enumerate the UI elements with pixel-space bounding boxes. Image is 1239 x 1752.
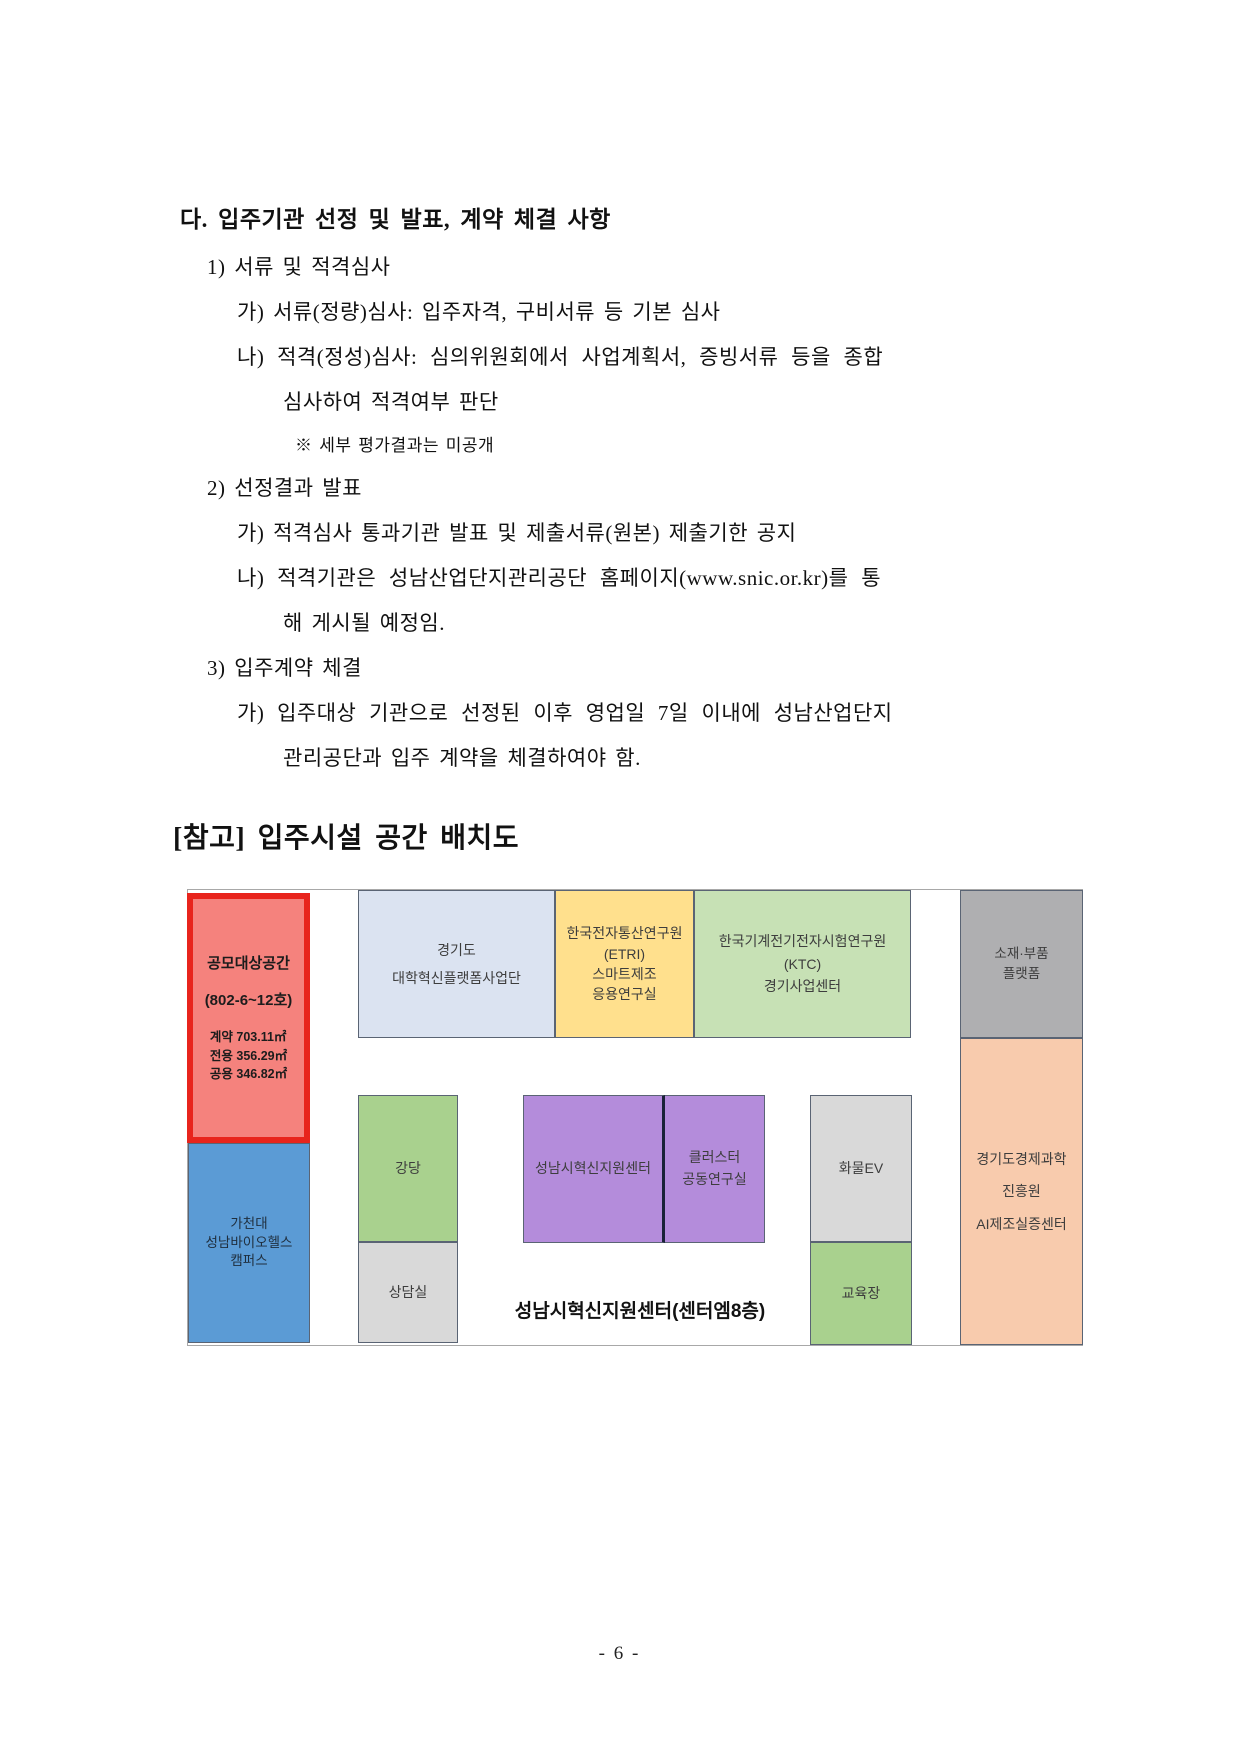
list-item-2: 2) 선정결과 발표: [207, 472, 362, 502]
reference-heading: [참고] 입주시설 공간 배치도: [173, 816, 519, 856]
room-training: 교육장: [810, 1242, 912, 1345]
target-space-title: 공모대상공간: [207, 952, 290, 973]
list-item-2-ga: 가) 적격심사 통과기관 발표 및 제출서류(원본) 제출기한 공지: [237, 517, 796, 547]
target-space-areas: 계약 703.11㎡ 전용 356.29㎡ 공용 346.82㎡: [210, 1028, 287, 1084]
list-item-2-na-cont: 해 게시될 예정임.: [283, 607, 445, 637]
section-heading: 다. 입주기관 선정 및 발표, 계약 체결 사항: [180, 200, 611, 234]
room-cluster-lab: 클러스터 공동연구실: [665, 1095, 765, 1243]
room-innovation-center: 성남시혁신지원센터: [523, 1095, 665, 1243]
list-item-3: 3) 입주계약 체결: [207, 652, 362, 682]
list-item-3-ga: 가) 입주대상 기관으로 선정된 이후 영업일 7일 이내에 성남산업단지: [237, 697, 893, 727]
room-sojae-platform: 소재·부품 플랫폼: [960, 890, 1083, 1038]
room-auditorium: 강당: [358, 1095, 458, 1242]
list-item-1-ga: 가) 서류(정량)심사: 입주자격, 구비서류 등 기본 심사: [237, 296, 720, 326]
page-number: - 6 -: [0, 1643, 1239, 1665]
room-target-space: 공모대상공간 (802-6~12호) 계약 703.11㎡ 전용 356.29㎡…: [187, 893, 310, 1143]
room-ktc-center: 한국기계전기전자시험연구원 (KTC) 경기사업센터: [694, 890, 911, 1038]
list-item-3-ga-cont: 관리공단과 입주 계약을 체결하여야 함.: [283, 742, 641, 772]
room-counsel: 상담실: [358, 1242, 458, 1343]
document-page: 다. 입주기관 선정 및 발표, 계약 체결 사항 1) 서류 및 적격심사 가…: [0, 0, 1239, 1752]
room-cargo-ev: 화물EV: [810, 1095, 912, 1242]
floor-plan-caption: 성남시혁신지원센터(센터엠8층): [470, 1296, 810, 1323]
list-item-1-na: 나) 적격(정성)심사: 심의위원회에서 사업계획서, 증빙서류 등을 종합: [237, 341, 883, 371]
list-item-1: 1) 서류 및 적격심사: [207, 251, 390, 281]
room-gyeonggi-economy-science: 경기도경제과학 진흥원 AI제조실증센터: [960, 1038, 1083, 1345]
room-gyeonggi-univ-platform: 경기도 대학혁신플랫폼사업단: [358, 890, 555, 1038]
list-item-1-na-cont: 심사하여 적격여부 판단: [283, 386, 499, 416]
footnote-text: ※ 세부 평가결과는 미공개: [295, 431, 494, 456]
room-gachon-campus: 가천대 성남바이오헬스 캠퍼스: [188, 1143, 310, 1343]
target-space-unit: (802-6~12호): [205, 989, 293, 1010]
room-etri-lab: 한국전자통산연구원 (ETRI) 스마트제조 응용연구실: [555, 890, 694, 1038]
list-item-2-na: 나) 적격기관은 성남산업단지관리공단 홈페이지(www.snic.or.kr)…: [237, 562, 881, 592]
